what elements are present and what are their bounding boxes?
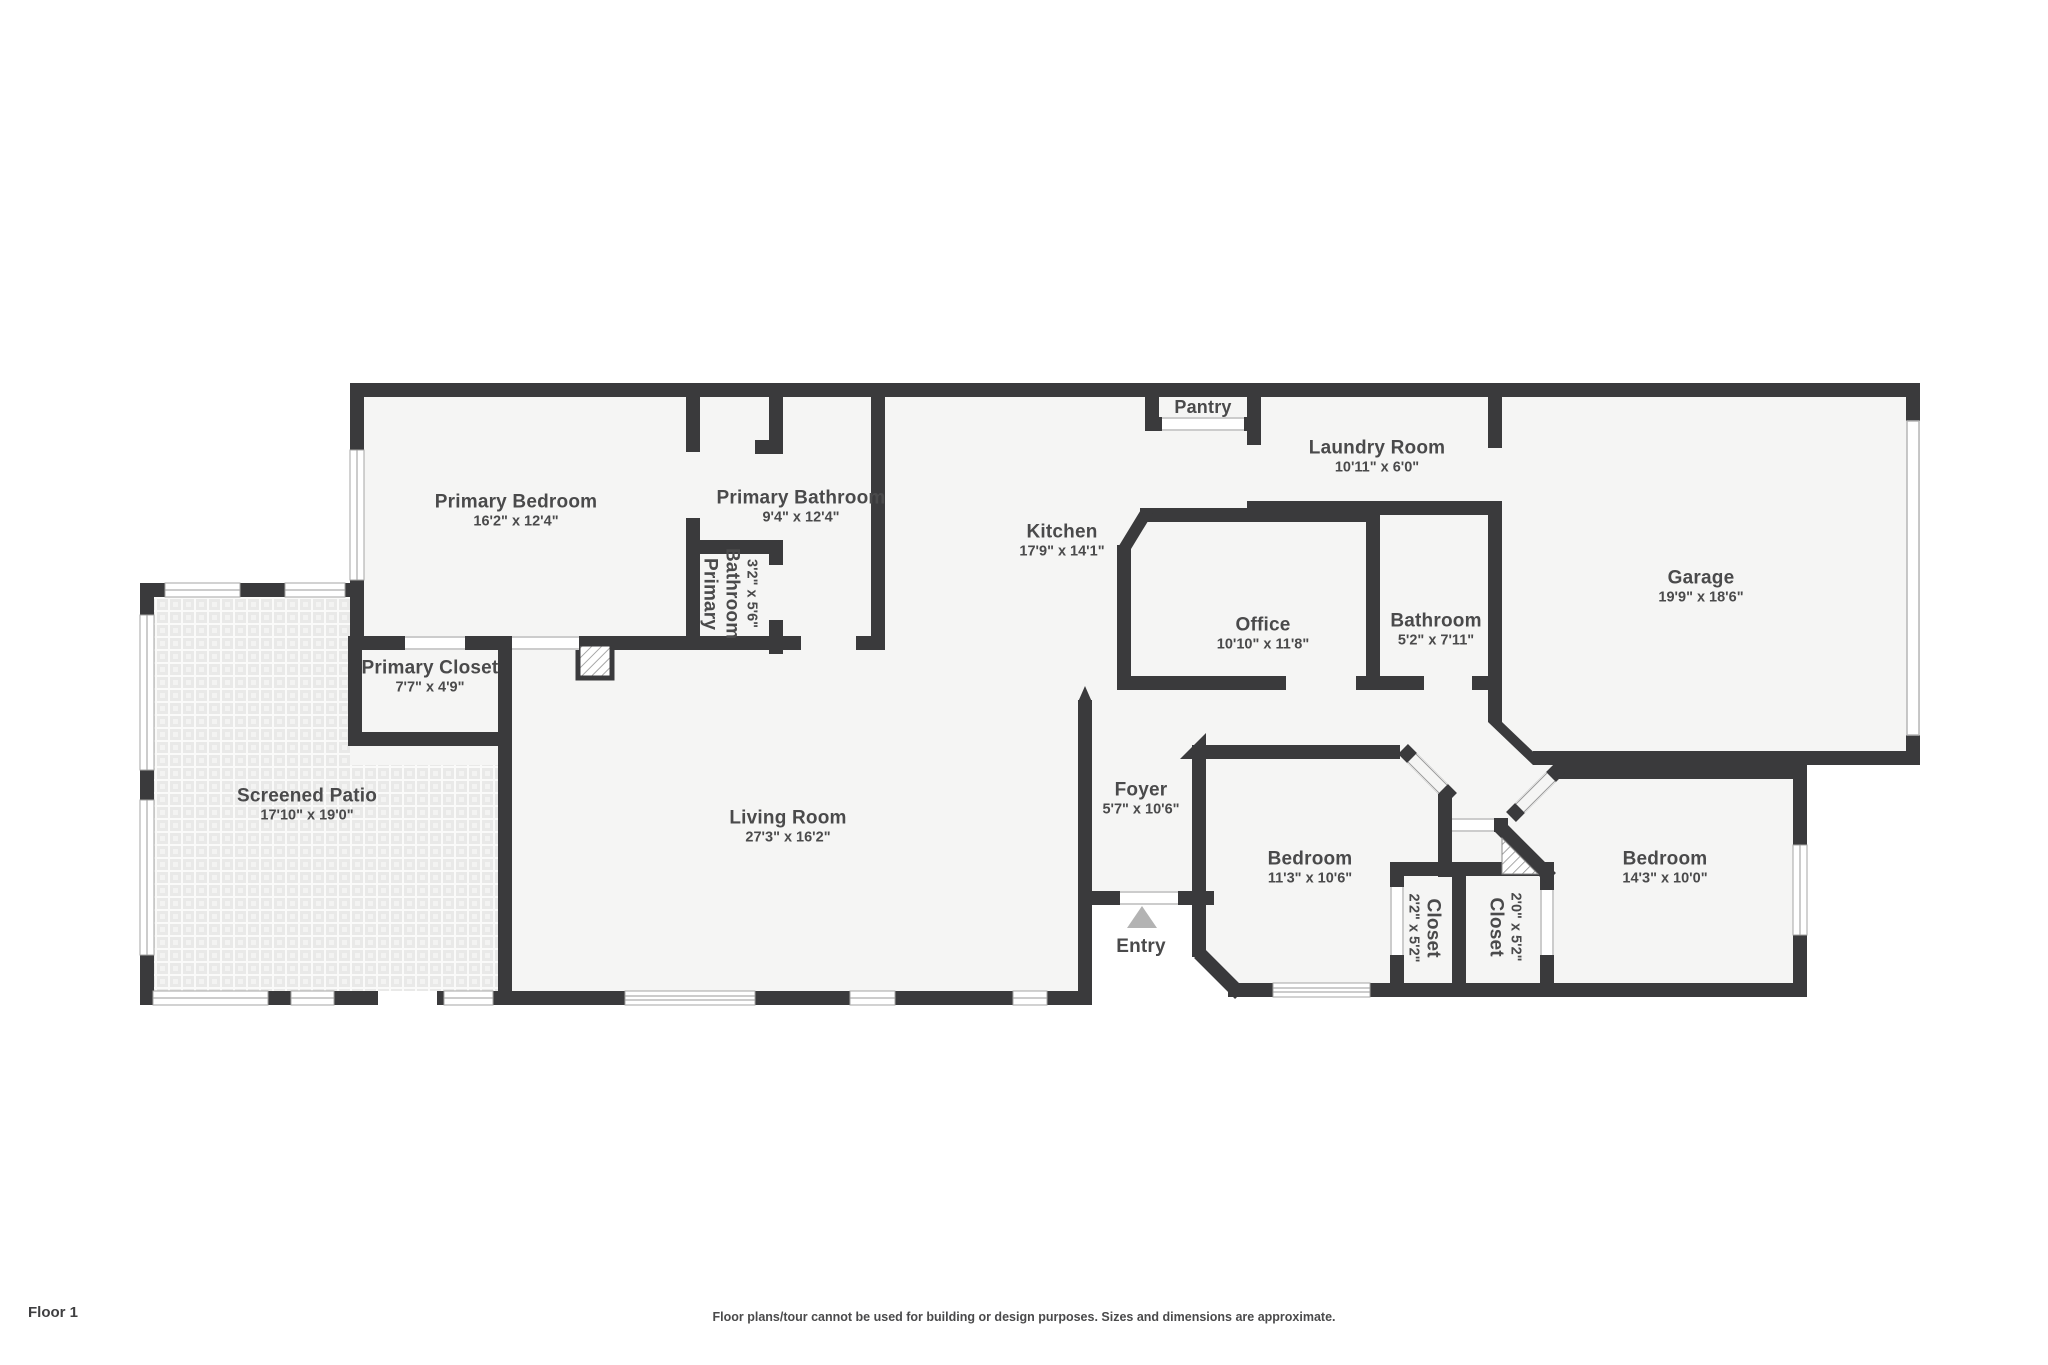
room-label-closet-1: Closet 2'2" x 5'2" xyxy=(1405,893,1444,962)
entry-arrow-icon xyxy=(1127,906,1157,928)
garage-door-wall xyxy=(1907,421,1919,735)
room-label-pantry: Pantry xyxy=(1174,396,1231,418)
room-label-laundry-room: Laundry Room10'11" x 6'0" xyxy=(1309,438,1445,477)
floor-plan-drawing xyxy=(0,0,2048,1365)
room-label-kitchen: Kitchen17'9" x 14'1" xyxy=(1019,522,1104,561)
room-label-living-room: Living Room27'3" x 16'2" xyxy=(729,808,846,847)
room-label-primary-closet: Primary Closet7'7" x 4'9" xyxy=(362,658,499,697)
room-label-bedroom-2: Bedroom14'3" x 10'0" xyxy=(1622,849,1707,888)
room-label-garage: Garage19'9" x 18'6" xyxy=(1658,568,1743,607)
floor-plan-page: Primary Bedroom16'2" x 12'4" Primary Bat… xyxy=(0,0,2048,1365)
disclaimer-text: Floor plans/tour cannot be used for buil… xyxy=(712,1310,1335,1324)
room-label-bathroom: Bathroom5'2" x 7'11" xyxy=(1390,611,1481,650)
fireplace-hatch-icon xyxy=(578,644,612,678)
room-label-foyer: Foyer5'7" x 10'6" xyxy=(1102,780,1179,819)
room-label-closet-2: Closet 2'0" x 5'2" xyxy=(1485,892,1524,961)
room-label-primary-bedroom: Primary Bedroom16'2" x 12'4" xyxy=(435,492,597,531)
room-label-entry: Entry xyxy=(1116,936,1166,958)
room-label-screened-patio: Screened Patio17'10" x 19'0" xyxy=(237,786,377,825)
room-label-primary-bathroom-small: Primary Bathroom 3'2" x 5'6" xyxy=(699,538,760,650)
floor-number-label: Floor 1 xyxy=(28,1304,78,1321)
room-label-primary-bathroom: Primary Bathroom9'4" x 12'4" xyxy=(717,488,886,527)
room-label-office: Office10'10" x 11'8" xyxy=(1217,615,1309,654)
room-label-bedroom-1: Bedroom11'3" x 10'6" xyxy=(1268,849,1353,888)
